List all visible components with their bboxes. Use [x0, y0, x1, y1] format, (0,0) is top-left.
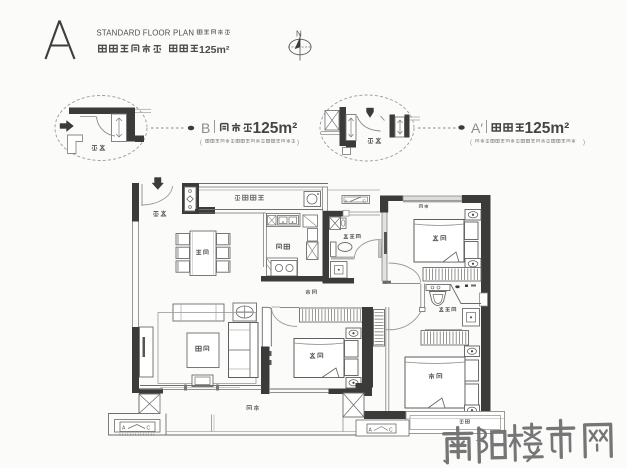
svg-text:C: C: [389, 428, 393, 434]
svg-text:A′: A′: [471, 120, 483, 136]
svg-text:B: B: [201, 120, 210, 136]
svg-text:125m²: 125m²: [525, 120, 570, 137]
svg-text:): ): [583, 140, 585, 146]
svg-text:C: C: [147, 426, 151, 432]
svg-text:C: C: [363, 198, 367, 204]
svg-text:N: N: [296, 30, 302, 39]
svg-text:125m²: 125m²: [253, 120, 298, 137]
svg-text:125m²: 125m²: [199, 44, 230, 56]
svg-text:(: (: [200, 140, 202, 146]
svg-text:(: (: [470, 140, 472, 146]
svg-text:): ): [297, 140, 299, 146]
svg-text:STANDARD FLOOR PLAN: STANDARD FLOOR PLAN: [97, 29, 195, 38]
